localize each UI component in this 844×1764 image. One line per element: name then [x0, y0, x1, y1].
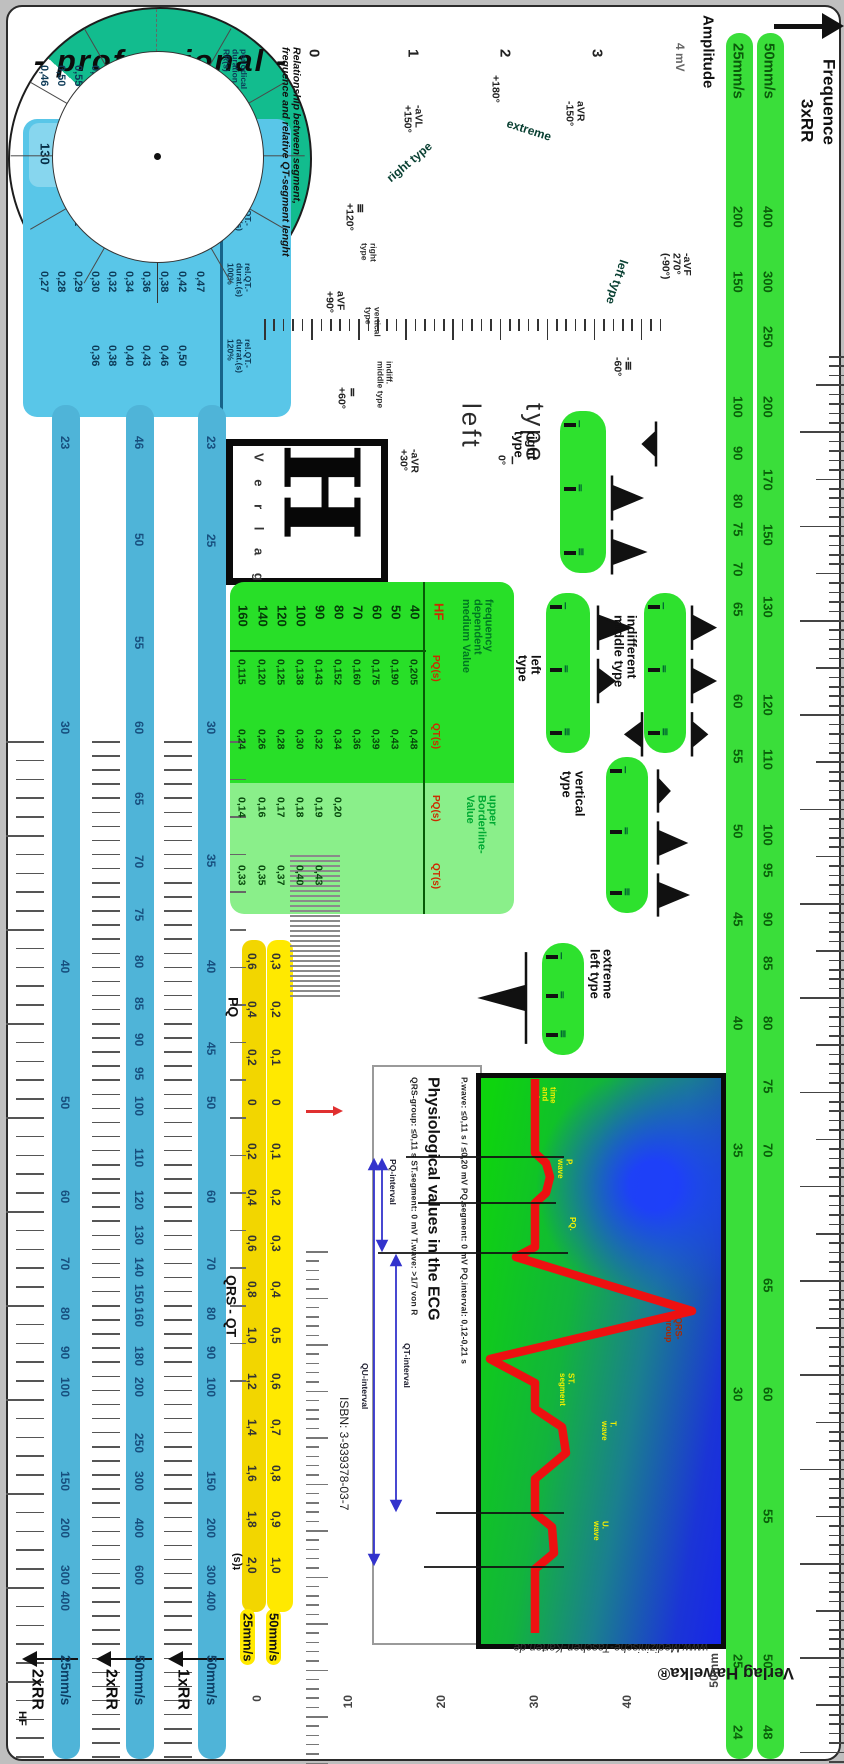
ecg-type-label: verticaltype	[560, 771, 587, 817]
lead-tick-icon	[546, 994, 558, 998]
lead-label: Ⅰ	[564, 419, 598, 437]
rr-frequency-value: 60	[205, 1190, 217, 1203]
lead-tick-icon	[546, 1033, 558, 1037]
ecg-type-pill: ⅠⅡⅢ	[644, 593, 686, 753]
mm-label: 40	[621, 1695, 633, 1708]
mm-label: 50mm	[708, 1653, 720, 1688]
ecg-ruler-card-photo: - professional - Relationship between se…	[0, 0, 844, 1764]
lead-label: Ⅱ	[648, 664, 682, 682]
lead-tick-icon	[648, 731, 660, 735]
rr-frequency-value: 35	[205, 854, 217, 867]
mm-ruler-labels: 01020304050mm	[8, 7, 839, 1759]
rr-frequency-value: 150	[59, 1471, 71, 1491]
rr-frequency-value: 200	[205, 1518, 217, 1538]
rr-frequency-value: 130	[133, 1225, 145, 1245]
lead-tick-icon	[564, 551, 576, 555]
lead-label: Ⅲ	[546, 1029, 580, 1047]
rr-frequency-value: 40	[205, 960, 217, 973]
qrs-complex-icon	[652, 765, 708, 921]
ecg-type-pill: ⅠⅡⅢ	[560, 411, 606, 573]
qrs-complex-icon	[476, 943, 532, 1053]
interval-label: PQ-interval	[388, 1159, 397, 1205]
rr-frequency-value: 70	[133, 855, 145, 868]
rr-frequency-value: 140	[133, 1257, 145, 1277]
rr-frequency-value: 85	[133, 997, 145, 1010]
rr-frequency-value: 30	[59, 721, 71, 734]
rr-frequency-value: 60	[133, 721, 145, 734]
ecg-ruler-card: - professional - Relationship between se…	[6, 5, 841, 1761]
rr-frequency-value: 70	[59, 1257, 71, 1270]
rr-frequency-value: 400	[133, 1518, 145, 1538]
rr-frequency-value: 90	[59, 1346, 71, 1359]
rr-frequency-value: 60	[59, 1190, 71, 1203]
rr-frequency-value: 46	[133, 436, 145, 449]
rr-frequency-value: 110	[133, 1148, 145, 1167]
rr-frequency-value: 150	[205, 1471, 217, 1491]
rr-frequency-value: 180	[133, 1346, 145, 1366]
rr-frequency-value: 50	[59, 1096, 71, 1109]
qrs-complex-icon	[606, 417, 662, 579]
rr-mode-label: 1xRR	[174, 1669, 190, 1710]
lead-tick-icon	[610, 830, 622, 834]
rr-frequency-value: 100	[59, 1377, 71, 1397]
lead-tick-icon	[564, 423, 576, 427]
rr-frequency-value: 55	[133, 636, 145, 649]
lead-label: Ⅰ	[610, 765, 644, 783]
lead-tick-icon	[550, 605, 562, 609]
lead-tick-icon	[610, 769, 622, 773]
rr-frequency-value: 100	[205, 1377, 217, 1397]
rr-frequency-value: 120	[133, 1190, 145, 1210]
rr-frequency-value: 23	[205, 436, 217, 449]
mm-label: 10	[342, 1695, 354, 1708]
rr-frequency-value: 50	[133, 533, 145, 546]
lead-label: Ⅲ	[610, 887, 644, 905]
ecg-type-pill: ⅠⅡⅢ	[542, 943, 584, 1055]
rr-frequency-value: 300	[205, 1565, 217, 1585]
rr-frequency-value: 80	[205, 1307, 217, 1320]
rr-frequency-value: 400	[59, 1591, 71, 1611]
content-layer: - professional - Relationship between se…	[8, 7, 839, 1759]
pq-zero-arrow-icon	[333, 1106, 343, 1116]
rr-frequency-value: 160	[133, 1307, 145, 1327]
ecg-type-pill: ⅠⅡⅢ	[546, 593, 590, 753]
rr-frequency-value: 400	[205, 1591, 217, 1611]
lead-label: Ⅰ	[648, 601, 682, 619]
lead-label: Ⅱ	[550, 664, 584, 682]
lead-tick-icon	[550, 668, 562, 672]
qrs-complex-icon	[686, 601, 742, 761]
lead-label: Ⅱ	[610, 826, 644, 844]
rr-frequency-value: 95	[133, 1067, 145, 1080]
lead-tick-icon	[546, 955, 558, 959]
rr-frequency-value: 300	[133, 1471, 145, 1491]
mm-label: 20	[435, 1695, 447, 1708]
rr-frequency-value: 80	[59, 1307, 71, 1320]
pq-zero-arrow-line	[306, 1110, 334, 1113]
rr-frequency-value: 70	[205, 1257, 217, 1270]
mm-label: 30	[528, 1695, 540, 1708]
rr-mode-label: 2xRR	[28, 1669, 44, 1710]
rr-frequency-value: 80	[133, 955, 145, 968]
rr-frequency-value: 30	[205, 721, 217, 734]
rr-frequency-value: 200	[133, 1377, 145, 1397]
mm-label: 0	[251, 1695, 263, 1702]
rr-frequency-value: 90	[133, 1033, 145, 1046]
lead-label: Ⅲ	[648, 727, 682, 745]
rr-frequency-value: 40	[59, 960, 71, 973]
lead-label: Ⅰ	[546, 951, 580, 969]
rr-speed-label: 50mm/s	[132, 1655, 146, 1705]
rr-frequency-value: 25	[205, 534, 217, 547]
interval-label: QT-interval	[402, 1343, 411, 1388]
rr-speed-label: 50mm/s	[204, 1655, 218, 1705]
ecg-type-label: lefttype	[516, 655, 543, 682]
lead-label: Ⅲ	[550, 727, 584, 745]
ecg-type-label: indifferentmiddle type	[612, 615, 639, 687]
lead-tick-icon	[564, 487, 576, 491]
rr-frequency-value: 90	[205, 1346, 217, 1359]
rr-frequency-value: 23	[59, 436, 71, 449]
lead-label: Ⅲ	[564, 547, 598, 565]
lead-tick-icon	[550, 731, 562, 735]
hf-corner-label: HF	[16, 1711, 27, 1726]
rr-frequency-value: 65	[133, 792, 145, 805]
lead-label: Ⅱ	[546, 990, 580, 1008]
lead-tick-icon	[648, 605, 660, 609]
rr-frequency-value: 300	[59, 1565, 71, 1585]
interval-label: QU-interval	[360, 1363, 369, 1409]
rr-frequency-value: 75	[133, 908, 145, 921]
lead-label: Ⅰ	[550, 601, 584, 619]
rr-frequency-value: 100	[133, 1096, 145, 1116]
lead-label: Ⅱ	[564, 483, 598, 501]
rr-frequency-value: 45	[205, 1042, 217, 1055]
lead-tick-icon	[610, 891, 622, 895]
rr-frequency-value: 250	[133, 1433, 145, 1453]
rr-frequency-value: 150	[133, 1284, 145, 1304]
ecg-type-pill: ⅠⅡⅢ	[606, 757, 648, 913]
rr-mode-label: 2xRR	[102, 1669, 118, 1710]
rr-frequency-value: 600	[133, 1565, 145, 1585]
rr-frequency-value: 50	[205, 1096, 217, 1109]
lead-tick-icon	[648, 668, 660, 672]
rr-frequency-value: 200	[59, 1518, 71, 1538]
ecg-type-label: righttype	[512, 431, 539, 460]
ecg-type-label: extremeleft type	[588, 949, 615, 999]
rr-speed-label: 25mm/s	[58, 1655, 72, 1705]
